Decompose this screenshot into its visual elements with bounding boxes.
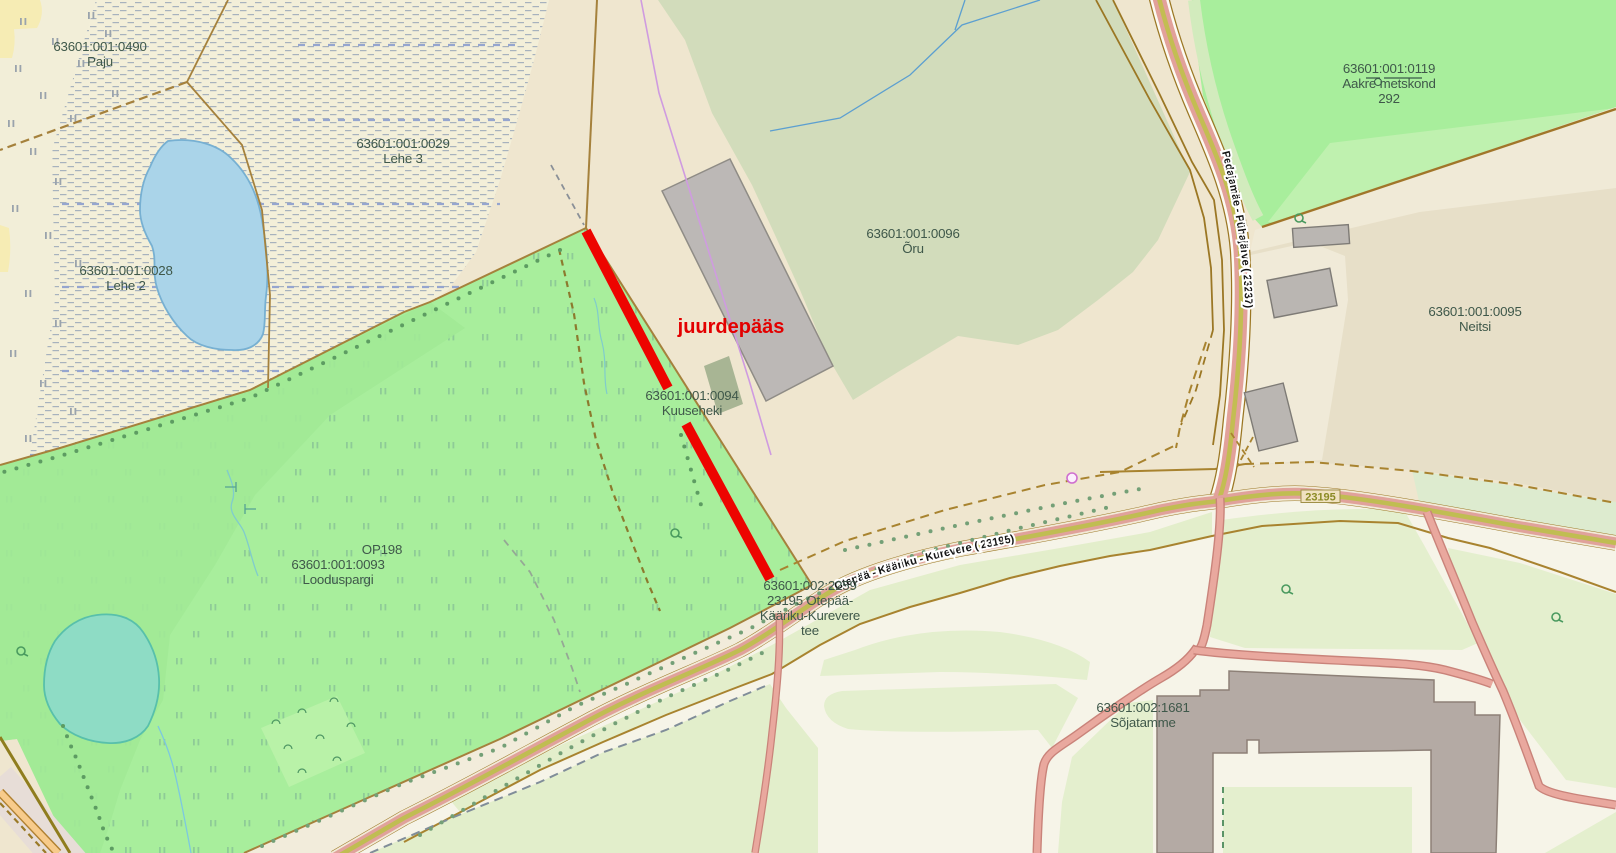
svg-text:63601:001:0095: 63601:001:0095 — [1428, 304, 1521, 319]
svg-text:Looduspargi: Looduspargi — [303, 572, 374, 587]
svg-text:63601:001:0029: 63601:001:0029 — [356, 136, 449, 151]
svg-text:Kääriku-Kurevere: Kääriku-Kurevere — [760, 608, 860, 623]
svg-text:63601:001:0093: 63601:001:0093 — [291, 557, 384, 572]
svg-text:23195: 23195 — [1305, 492, 1336, 504]
svg-text:Õru: Õru — [902, 241, 924, 256]
svg-text:Lehe 3: Lehe 3 — [383, 151, 422, 166]
svg-text:63601:001:0119: 63601:001:0119 — [1343, 61, 1435, 76]
svg-text:63601:002:1681: 63601:002:1681 — [1096, 700, 1189, 715]
svg-text:63601:001:0094: 63601:001:0094 — [645, 388, 738, 403]
svg-text:Paju: Paju — [87, 54, 113, 69]
svg-text:Neitsi: Neitsi — [1459, 319, 1491, 334]
svg-text:63601:001:0490: 63601:001:0490 — [53, 39, 146, 54]
svg-text:63601:002:2259: 63601:002:2259 — [763, 578, 856, 593]
svg-text:Lehe 2: Lehe 2 — [106, 278, 145, 293]
svg-text:292: 292 — [1378, 91, 1400, 106]
svg-text:tee: tee — [801, 623, 819, 638]
svg-text:63601:001:0096: 63601:001:0096 — [866, 226, 959, 241]
svg-text:juurdepääs: juurdepääs — [677, 316, 785, 338]
svg-text:Sõjatamme: Sõjatamme — [1110, 715, 1175, 730]
svg-text:OP198: OP198 — [362, 542, 402, 557]
svg-text:Kuuseheki: Kuuseheki — [662, 403, 723, 418]
svg-text:23195 Otepää-: 23195 Otepää- — [767, 593, 853, 608]
svg-text:63601:001:0028: 63601:001:0028 — [79, 263, 172, 278]
